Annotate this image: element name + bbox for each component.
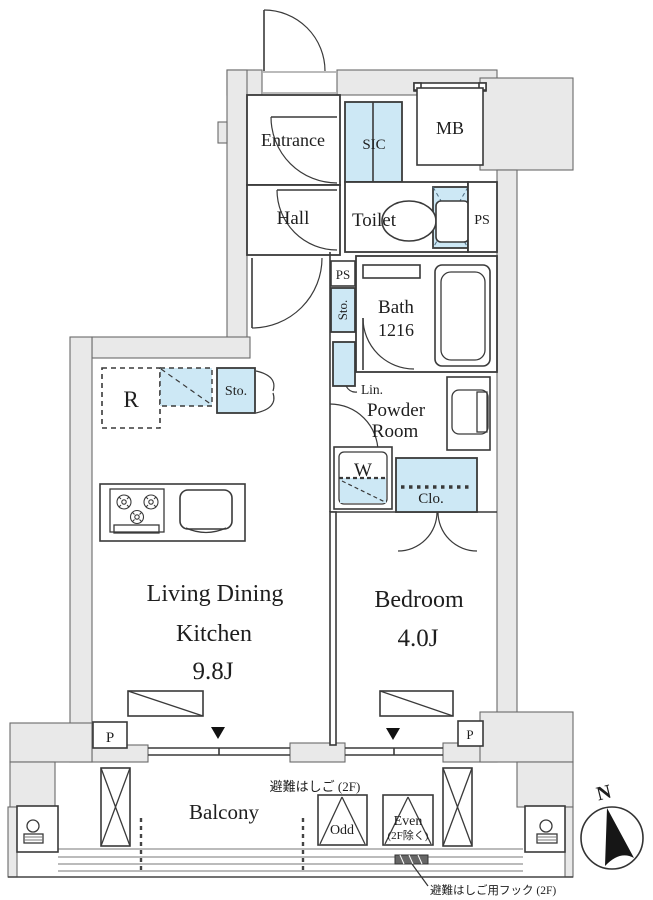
fridge-label: R — [123, 387, 139, 412]
hatch-even-label-2: (2F除く) — [388, 828, 429, 842]
window-marker-left-icon — [211, 727, 225, 739]
vanity-icon — [447, 377, 490, 450]
powder-room-label-1: Powder — [367, 400, 426, 421]
bedroom-label: Bedroom — [374, 587, 464, 613]
closet-label: Clo. — [418, 491, 443, 507]
balcony-label: Balcony — [189, 800, 259, 824]
ldk-size-label: 9.8J — [193, 658, 234, 685]
powder-room-label-2: Room — [372, 421, 419, 442]
toilet-label: Toilet — [352, 210, 397, 231]
shaft-hatch-right-icon — [443, 768, 472, 846]
window-marker-right-icon — [386, 728, 400, 740]
sic-label: SIC — [362, 137, 385, 153]
entrance-label: Entrance — [261, 130, 325, 150]
pipe-shaft-label: PS — [474, 213, 490, 228]
hatch-even-label-1: Even — [394, 814, 423, 829]
bath-counter — [363, 265, 420, 278]
escape-ladder-label: 避難はしご (2F) — [270, 779, 361, 794]
floor-plan-page: Entrance SIC MB Hall Toilet PS PS Sto. B… — [0, 0, 653, 900]
room-partition — [330, 512, 336, 745]
escape-hook-label: 避難はしご用フック (2F) — [430, 883, 556, 897]
pillar-right-label: P — [466, 727, 473, 742]
ldk-label-2: Kitchen — [176, 621, 252, 647]
toilet-tank-icon — [436, 201, 469, 242]
linen-box — [333, 342, 355, 386]
hall-label: Hall — [277, 208, 310, 229]
drain-left-icon — [17, 806, 58, 852]
bath-size-label: 1216 — [378, 320, 414, 340]
linen-label: Lin. — [361, 382, 383, 397]
ldk-label-1: Living Dining — [147, 581, 284, 607]
sink-icon — [180, 490, 232, 529]
shaft-hatch-left-icon — [101, 768, 130, 846]
washer-label: W — [354, 460, 372, 481]
hall-storage-label: Sto. — [335, 300, 350, 321]
kitchen-storage-label: Sto. — [225, 384, 247, 399]
drain-right-icon — [525, 806, 565, 852]
entrance-opening — [263, 68, 336, 96]
meter-box-label: MB — [436, 118, 464, 138]
bath-label: Bath — [378, 297, 414, 318]
compass-icon — [581, 807, 643, 869]
pipe-shaft-small-label: PS — [336, 267, 350, 282]
hatch-odd-label: Odd — [330, 823, 354, 838]
pillar-left-label: P — [106, 730, 114, 746]
bathtub-icon — [435, 265, 490, 366]
entrance-door-swing — [264, 10, 325, 71]
bedroom-size-label: 4.0J — [398, 625, 439, 652]
compass-north-label: N — [594, 780, 614, 805]
